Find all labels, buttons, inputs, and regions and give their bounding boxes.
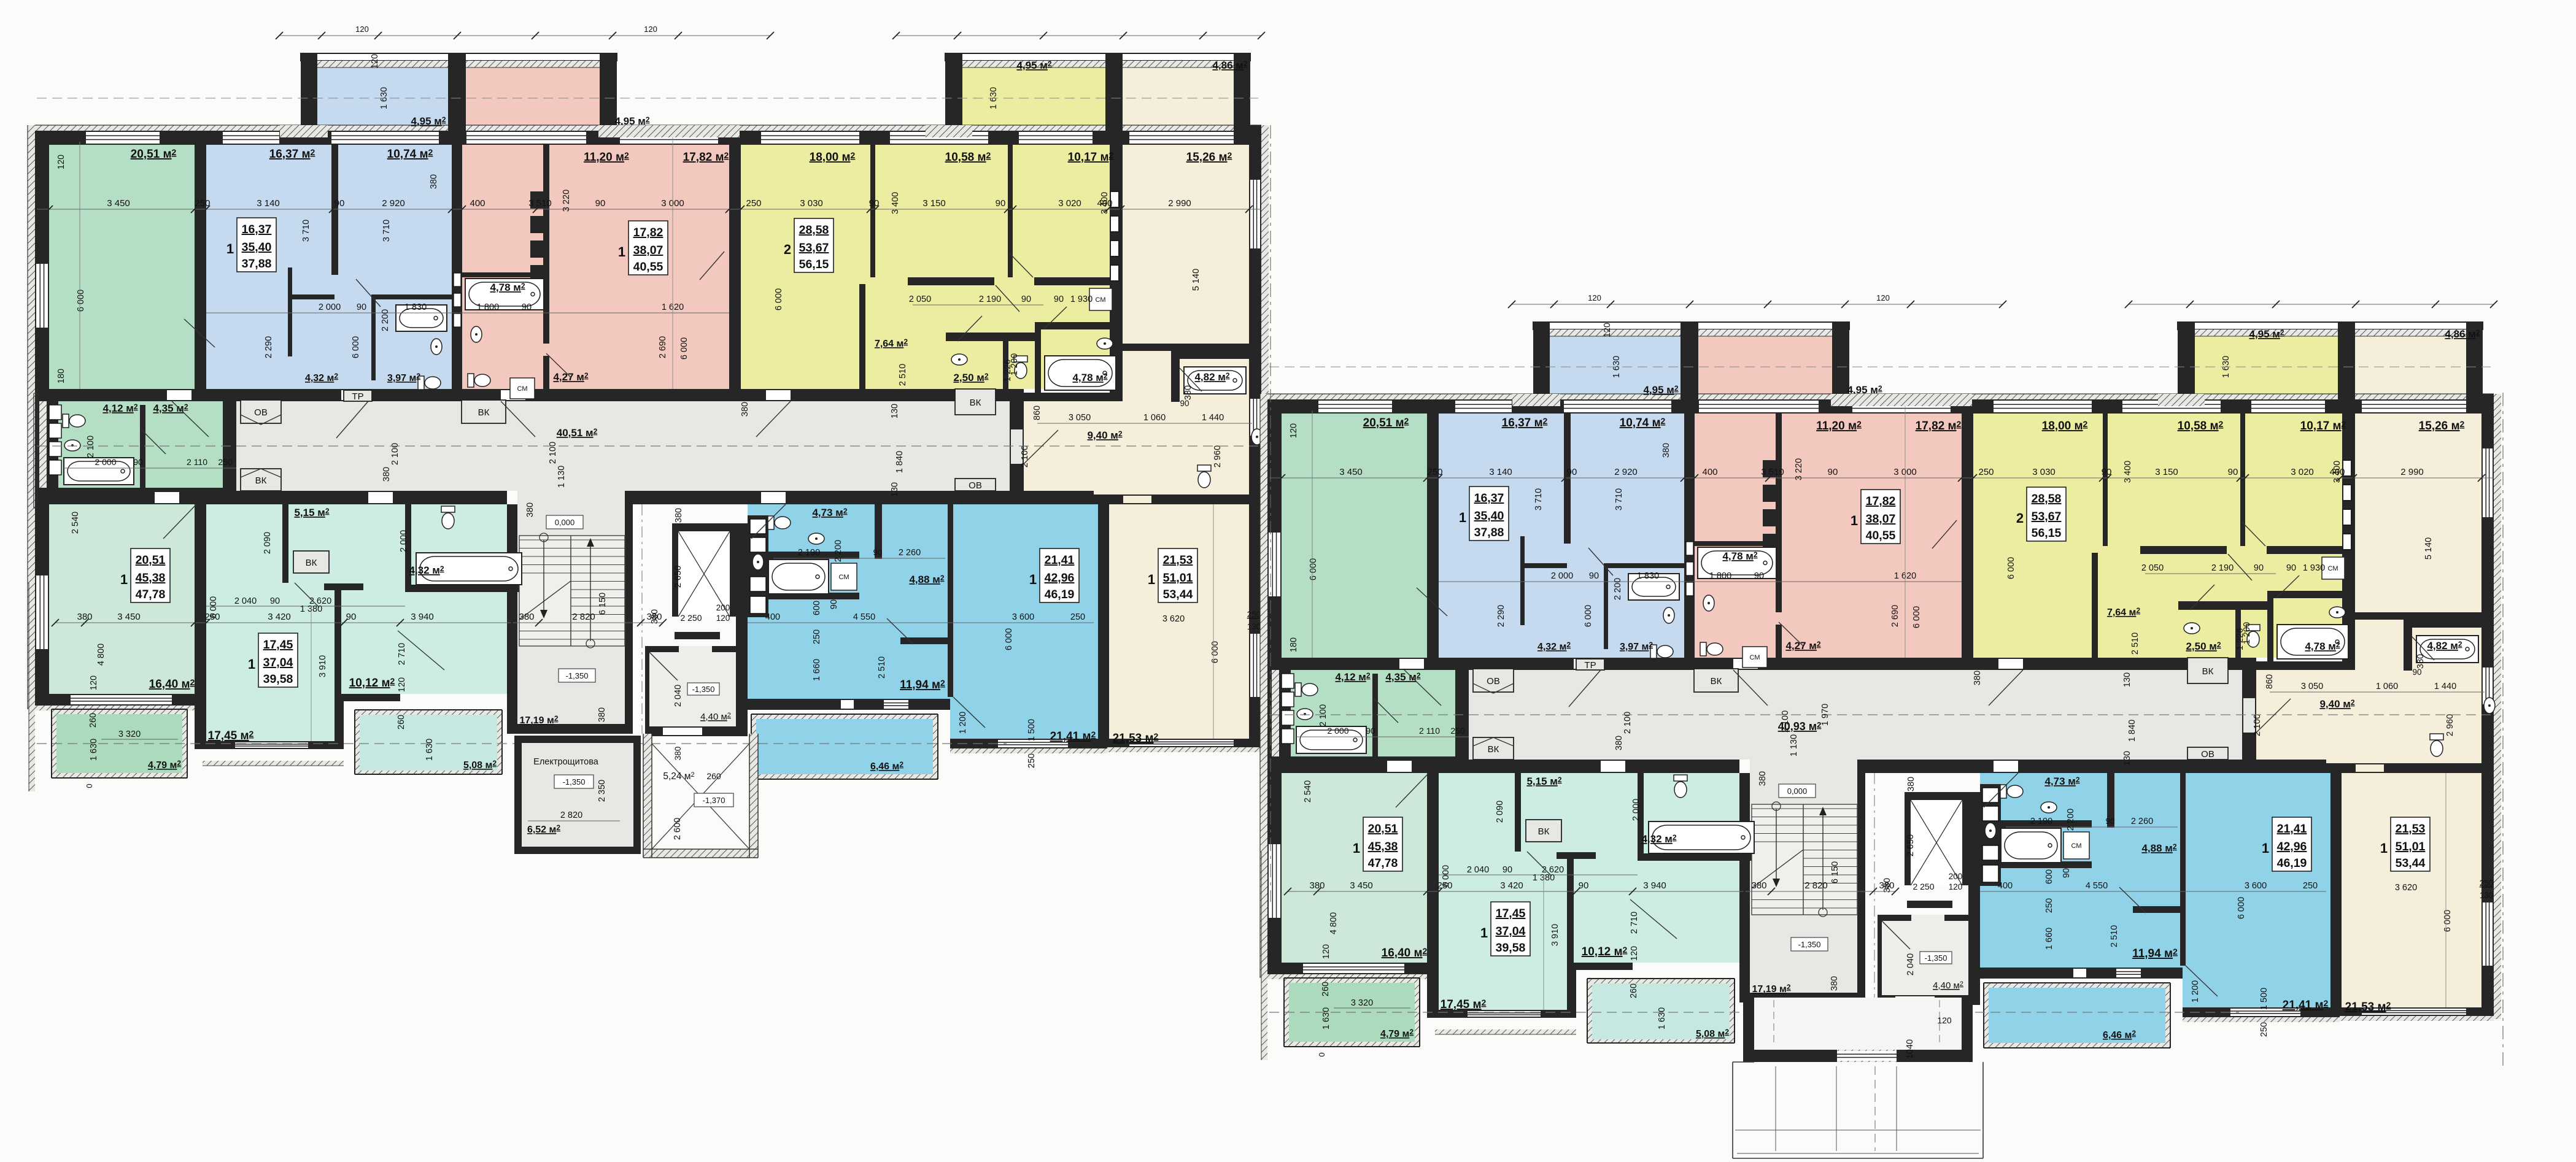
svg-text:2 190: 2 190 xyxy=(979,294,1001,304)
svg-text:400: 400 xyxy=(765,612,780,622)
svg-text:120: 120 xyxy=(56,155,66,169)
svg-text:1 630: 1 630 xyxy=(425,739,435,761)
svg-text:2 190: 2 190 xyxy=(798,548,820,558)
svg-text:130: 130 xyxy=(890,404,900,418)
svg-text:ВК: ВК xyxy=(478,407,490,418)
svg-text:180: 180 xyxy=(56,369,66,383)
svg-text:21,53 м2: 21,53 м2 xyxy=(1113,731,1159,745)
svg-text:380: 380 xyxy=(429,174,439,189)
svg-text:1: 1 xyxy=(248,656,255,672)
svg-text:5,08 м2: 5,08 м2 xyxy=(463,759,497,771)
svg-text:20,51 м2: 20,51 м2 xyxy=(131,147,177,161)
svg-text:1 800: 1 800 xyxy=(477,302,499,312)
svg-text:4 550: 4 550 xyxy=(853,612,875,622)
svg-text:СМ: СМ xyxy=(839,574,849,581)
svg-text:260: 260 xyxy=(88,713,98,728)
svg-text:120: 120 xyxy=(370,54,380,69)
svg-text:250: 250 xyxy=(218,457,233,467)
svg-text:1 630: 1 630 xyxy=(89,739,99,761)
svg-text:18,00 м2: 18,00 м2 xyxy=(810,150,856,164)
svg-text:90: 90 xyxy=(873,548,882,557)
svg-text:10,17 м2: 10,17 м2 xyxy=(1068,150,1114,164)
svg-text:380: 380 xyxy=(674,508,684,523)
svg-text:600: 600 xyxy=(812,601,822,615)
svg-text:17,45: 17,45 xyxy=(263,638,293,652)
svg-text:90: 90 xyxy=(595,198,606,209)
svg-text:90: 90 xyxy=(1021,294,1031,304)
svg-text:90: 90 xyxy=(133,457,143,467)
svg-text:1 500: 1 500 xyxy=(1027,719,1037,741)
svg-text:1: 1 xyxy=(1029,572,1037,587)
svg-text:3 050: 3 050 xyxy=(1069,413,1091,423)
svg-text:11,20 м2: 11,20 м2 xyxy=(584,150,629,164)
svg-text:1 830: 1 830 xyxy=(404,302,427,312)
svg-text:37,04: 37,04 xyxy=(263,656,293,669)
svg-text:1 970: 1 970 xyxy=(1820,704,1830,726)
svg-text:2 690: 2 690 xyxy=(658,336,668,358)
svg-text:120: 120 xyxy=(716,614,730,623)
svg-text:1 200: 1 200 xyxy=(958,712,968,734)
svg-text:3 320: 3 320 xyxy=(118,729,141,739)
svg-text:3 020: 3 020 xyxy=(1058,198,1081,209)
svg-text:16,37: 16,37 xyxy=(242,223,272,236)
svg-text:200: 200 xyxy=(716,603,730,612)
svg-text:250: 250 xyxy=(812,629,822,644)
svg-text:120: 120 xyxy=(397,677,407,692)
svg-text:2 820: 2 820 xyxy=(572,612,595,622)
svg-text:380: 380 xyxy=(1183,385,1193,400)
svg-text:380: 380 xyxy=(519,612,534,622)
svg-text:3 620: 3 620 xyxy=(1162,614,1185,624)
svg-text:2 040: 2 040 xyxy=(673,685,683,707)
svg-text:90: 90 xyxy=(1054,294,1064,304)
svg-text:3 420: 3 420 xyxy=(268,612,291,622)
svg-text:17,82: 17,82 xyxy=(633,226,663,239)
svg-text:1 130: 1 130 xyxy=(557,466,567,488)
svg-text:130: 130 xyxy=(890,482,900,497)
svg-text:3 910: 3 910 xyxy=(318,655,328,677)
svg-text:2 100: 2 100 xyxy=(1020,445,1030,467)
svg-text:10,58 м2: 10,58 м2 xyxy=(945,150,991,164)
svg-text:1 440: 1 440 xyxy=(1202,413,1224,423)
svg-text:2 040: 2 040 xyxy=(234,596,257,606)
svg-text:6,46 м2: 6,46 м2 xyxy=(870,760,903,772)
svg-text:90: 90 xyxy=(996,198,1006,209)
svg-text:4,12 м2: 4,12 м2 xyxy=(102,402,137,414)
svg-text:37,88: 37,88 xyxy=(242,257,272,271)
svg-text:10,12 м2: 10,12 м2 xyxy=(349,676,395,690)
svg-text:ОВ: ОВ xyxy=(254,407,268,418)
svg-text:260: 260 xyxy=(706,771,721,781)
svg-text:250: 250 xyxy=(1070,612,1085,622)
svg-text:ВК: ВК xyxy=(970,398,981,408)
svg-text:4,78 м2: 4,78 м2 xyxy=(490,282,525,293)
svg-text:2 260: 2 260 xyxy=(899,548,921,558)
svg-text:4,86 м2: 4,86 м2 xyxy=(1212,60,1247,71)
svg-text:120: 120 xyxy=(644,25,657,34)
svg-text:4,79 м2: 4,79 м2 xyxy=(148,759,181,771)
svg-text:1: 1 xyxy=(618,244,625,260)
svg-text:250: 250 xyxy=(1247,610,1261,619)
svg-text:4,95 м2: 4,95 м2 xyxy=(411,115,446,127)
svg-text:4,95 м2: 4,95 м2 xyxy=(1016,60,1051,71)
svg-text:130: 130 xyxy=(1247,622,1261,631)
svg-text:1 226: 1 226 xyxy=(1003,360,1013,382)
svg-text:21,41: 21,41 xyxy=(1045,553,1075,567)
svg-text:4,82 м2: 4,82 м2 xyxy=(1194,371,1229,383)
svg-text:20,51: 20,51 xyxy=(136,553,166,567)
svg-text:-1,350: -1,350 xyxy=(566,671,589,680)
svg-text:35,40: 35,40 xyxy=(242,240,272,254)
svg-text:2 200: 2 200 xyxy=(834,540,843,562)
svg-text:2: 2 xyxy=(784,242,791,257)
svg-text:6 150: 6 150 xyxy=(598,593,608,615)
svg-text:1 660: 1 660 xyxy=(812,659,822,681)
svg-text:2 090: 2 090 xyxy=(263,532,273,554)
svg-text:17,45 м2: 17,45 м2 xyxy=(208,729,254,742)
svg-text:250: 250 xyxy=(1027,753,1037,768)
svg-text:4,32 м2: 4,32 м2 xyxy=(305,372,338,383)
svg-text:4,88 м2: 4,88 м2 xyxy=(909,574,944,585)
svg-text:-1,350: -1,350 xyxy=(692,685,715,694)
svg-text:40,93 м2: 40,93 м2 xyxy=(1778,720,1822,733)
svg-text:250: 250 xyxy=(746,198,761,209)
svg-text:400: 400 xyxy=(470,198,485,209)
svg-text:СМ: СМ xyxy=(1096,296,1106,304)
svg-text:3 150: 3 150 xyxy=(922,198,946,209)
svg-text:3,97 м2: 3,97 м2 xyxy=(387,372,420,383)
svg-text:3 710: 3 710 xyxy=(301,220,311,242)
svg-text:860: 860 xyxy=(1032,406,1042,420)
svg-text:2 000: 2 000 xyxy=(319,302,341,312)
svg-text:3 450: 3 450 xyxy=(107,198,130,209)
svg-text:0: 0 xyxy=(85,783,94,788)
svg-text:6 000: 6 000 xyxy=(1210,641,1220,663)
svg-text:46,19: 46,19 xyxy=(1045,588,1075,601)
svg-text:4,78 м2: 4,78 м2 xyxy=(1072,372,1107,383)
svg-text:3 510: 3 510 xyxy=(528,198,552,209)
svg-text:6 000: 6 000 xyxy=(351,336,361,358)
svg-text:6 000: 6 000 xyxy=(76,290,86,312)
svg-text:4,32 м2: 4,32 м2 xyxy=(409,564,444,576)
svg-text:2 200: 2 200 xyxy=(381,309,390,331)
svg-text:90: 90 xyxy=(270,596,280,606)
svg-text:ОВ: ОВ xyxy=(969,480,982,491)
svg-text:Електрощитова: Електрощитова xyxy=(533,757,599,767)
svg-text:380: 380 xyxy=(740,402,750,417)
svg-text:380: 380 xyxy=(77,612,92,622)
svg-text:1 930: 1 930 xyxy=(1070,294,1093,304)
svg-text:260: 260 xyxy=(396,715,406,729)
svg-text:380: 380 xyxy=(525,502,535,517)
svg-text:ВК: ВК xyxy=(306,558,317,568)
svg-text:6 000: 6 000 xyxy=(679,337,689,360)
svg-text:42,96: 42,96 xyxy=(1045,571,1075,585)
svg-text:380: 380 xyxy=(650,609,660,624)
svg-text:28,58: 28,58 xyxy=(799,223,829,237)
svg-text:53,44: 53,44 xyxy=(1163,588,1193,601)
svg-text:11,94 м2: 11,94 м2 xyxy=(900,678,945,691)
svg-text:90: 90 xyxy=(357,302,366,312)
svg-text:90: 90 xyxy=(335,198,345,209)
svg-text:2 250: 2 250 xyxy=(680,613,702,623)
svg-text:2 510: 2 510 xyxy=(877,656,887,679)
svg-text:-1,370: -1,370 xyxy=(703,796,725,805)
svg-text:4,40 м2: 4,40 м2 xyxy=(700,712,731,722)
svg-text:2 050: 2 050 xyxy=(909,294,931,304)
svg-text:10,74 м2: 10,74 м2 xyxy=(387,147,433,161)
svg-text:120: 120 xyxy=(1937,1015,1952,1025)
svg-text:1040: 1040 xyxy=(1905,1039,1915,1059)
svg-text:5 140: 5 140 xyxy=(1191,269,1201,291)
svg-text:380: 380 xyxy=(673,747,683,761)
svg-text:16,40 м2: 16,40 м2 xyxy=(149,677,195,691)
svg-text:17,82 м2: 17,82 м2 xyxy=(683,150,729,164)
svg-text:5,15 м2: 5,15 м2 xyxy=(294,507,329,518)
svg-text:1 060: 1 060 xyxy=(1143,413,1166,423)
svg-text:СМ: СМ xyxy=(517,385,528,393)
svg-text:2,50 м2: 2,50 м2 xyxy=(953,372,988,383)
svg-text:15,26 м2: 15,26 м2 xyxy=(1186,150,1232,164)
svg-text:6 000: 6 000 xyxy=(1004,628,1014,650)
svg-text:2 350: 2 350 xyxy=(597,780,607,802)
svg-text:6 000: 6 000 xyxy=(209,596,219,618)
svg-text:2 000: 2 000 xyxy=(95,457,116,467)
svg-text:2 920: 2 920 xyxy=(382,198,405,209)
svg-text:2 290: 2 290 xyxy=(264,336,274,358)
svg-text:17,19 м2: 17,19 м2 xyxy=(519,714,558,726)
svg-text:3 710: 3 710 xyxy=(382,220,392,242)
svg-text:1: 1 xyxy=(226,241,234,256)
svg-text:2 710: 2 710 xyxy=(397,643,407,665)
svg-text:6 000: 6 000 xyxy=(774,288,784,310)
svg-text:40,55: 40,55 xyxy=(633,260,663,274)
svg-text:21,53: 21,53 xyxy=(1163,553,1193,567)
svg-text:2 540: 2 540 xyxy=(71,512,80,534)
svg-text:3 400: 3 400 xyxy=(891,192,900,214)
svg-text:380: 380 xyxy=(597,707,607,722)
svg-text:21,41 м2: 21,41 м2 xyxy=(1050,729,1096,743)
svg-text:120: 120 xyxy=(355,25,369,34)
svg-text:2 820: 2 820 xyxy=(560,810,582,820)
svg-text:-1,350: -1,350 xyxy=(563,777,586,787)
svg-text:45,38: 45,38 xyxy=(136,571,166,585)
svg-text:47,78: 47,78 xyxy=(136,588,166,601)
svg-text:39,58: 39,58 xyxy=(263,672,293,686)
svg-text:4 800: 4 800 xyxy=(96,644,106,666)
svg-text:4,73 м2: 4,73 м2 xyxy=(812,507,847,518)
svg-text:90: 90 xyxy=(522,302,532,312)
svg-text:1 840: 1 840 xyxy=(895,451,905,473)
svg-text:9,40 м2: 9,40 м2 xyxy=(1087,429,1122,441)
svg-text:90: 90 xyxy=(829,599,839,609)
svg-text:2 100: 2 100 xyxy=(86,436,96,458)
svg-text:51,01: 51,01 xyxy=(1163,571,1193,585)
svg-text:2 110: 2 110 xyxy=(187,457,207,467)
svg-text:380: 380 xyxy=(382,467,392,482)
svg-text:2 600: 2 600 xyxy=(673,818,683,840)
svg-text:3 450: 3 450 xyxy=(117,612,141,622)
svg-text:40,51 м2: 40,51 м2 xyxy=(557,427,598,439)
svg-text:38,07: 38,07 xyxy=(633,244,663,257)
svg-text:2 990: 2 990 xyxy=(1168,198,1191,209)
svg-text:90: 90 xyxy=(346,612,357,622)
svg-text:1: 1 xyxy=(120,572,128,587)
svg-text:2 000: 2 000 xyxy=(399,530,409,552)
svg-text:56,15: 56,15 xyxy=(799,258,829,271)
svg-text:2 510: 2 510 xyxy=(898,364,908,386)
svg-text:53,67: 53,67 xyxy=(799,241,829,255)
svg-text:3 400: 3 400 xyxy=(1100,192,1110,214)
svg-text:0,000: 0,000 xyxy=(555,518,575,527)
svg-text:3 030: 3 030 xyxy=(800,198,823,209)
svg-text:120: 120 xyxy=(89,675,99,690)
svg-text:ВК: ВК xyxy=(255,475,267,486)
svg-text:2 960: 2 960 xyxy=(1213,445,1223,467)
svg-text:3 940: 3 940 xyxy=(411,612,434,622)
svg-text:7,64 м2: 7,64 м2 xyxy=(875,337,908,349)
svg-text:3 600: 3 600 xyxy=(1012,612,1034,622)
svg-text:1: 1 xyxy=(1148,572,1155,587)
svg-text:3 220: 3 220 xyxy=(562,190,571,212)
svg-text:2 100: 2 100 xyxy=(548,442,558,464)
svg-text:16,37 м2: 16,37 м2 xyxy=(269,147,315,161)
svg-text:5,24 м2: 5,24 м2 xyxy=(663,771,694,782)
svg-text:6,52 м2: 6,52 м2 xyxy=(527,823,560,835)
svg-text:3 140: 3 140 xyxy=(257,198,280,209)
svg-text:2 650: 2 650 xyxy=(673,566,683,588)
svg-text:ТР: ТР xyxy=(352,391,363,402)
